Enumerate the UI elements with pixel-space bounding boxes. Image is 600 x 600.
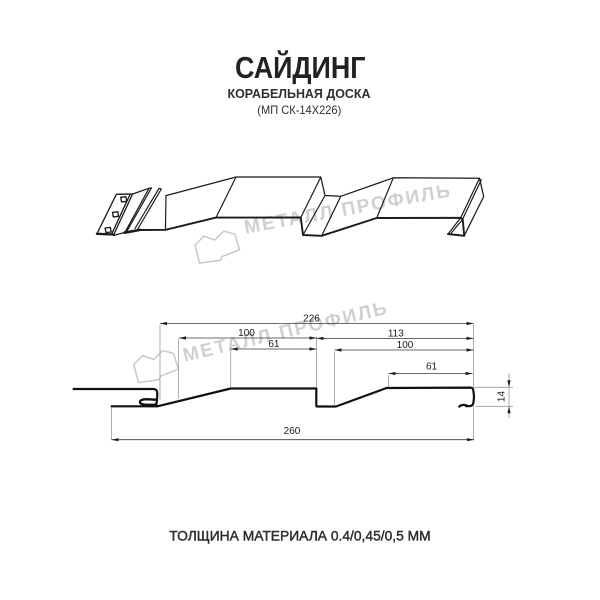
svg-text:260: 260 <box>284 426 301 437</box>
svg-text:14: 14 <box>497 391 508 403</box>
svg-text:226: 226 <box>303 314 320 325</box>
svg-text:113: 113 <box>388 329 404 340</box>
svg-text:61: 61 <box>268 339 280 350</box>
svg-text:КОРАБЕЛЬНАЯ ДОСКА: КОРАБЕЛЬНАЯ ДОСКА <box>228 86 371 101</box>
svg-text:(МП СК-14Х226): (МП СК-14Х226) <box>257 103 341 117</box>
svg-text:ТОЛЩИНА МАТЕРИАЛА 0.4/0,45/0,5: ТОЛЩИНА МАТЕРИАЛА 0.4/0,45/0,5 ММ <box>169 528 430 544</box>
svg-text:100: 100 <box>397 340 414 351</box>
svg-text:САЙДИНГ: САЙДИНГ <box>235 49 366 85</box>
svg-text:100: 100 <box>238 328 255 339</box>
svg-text:61: 61 <box>426 361 438 372</box>
